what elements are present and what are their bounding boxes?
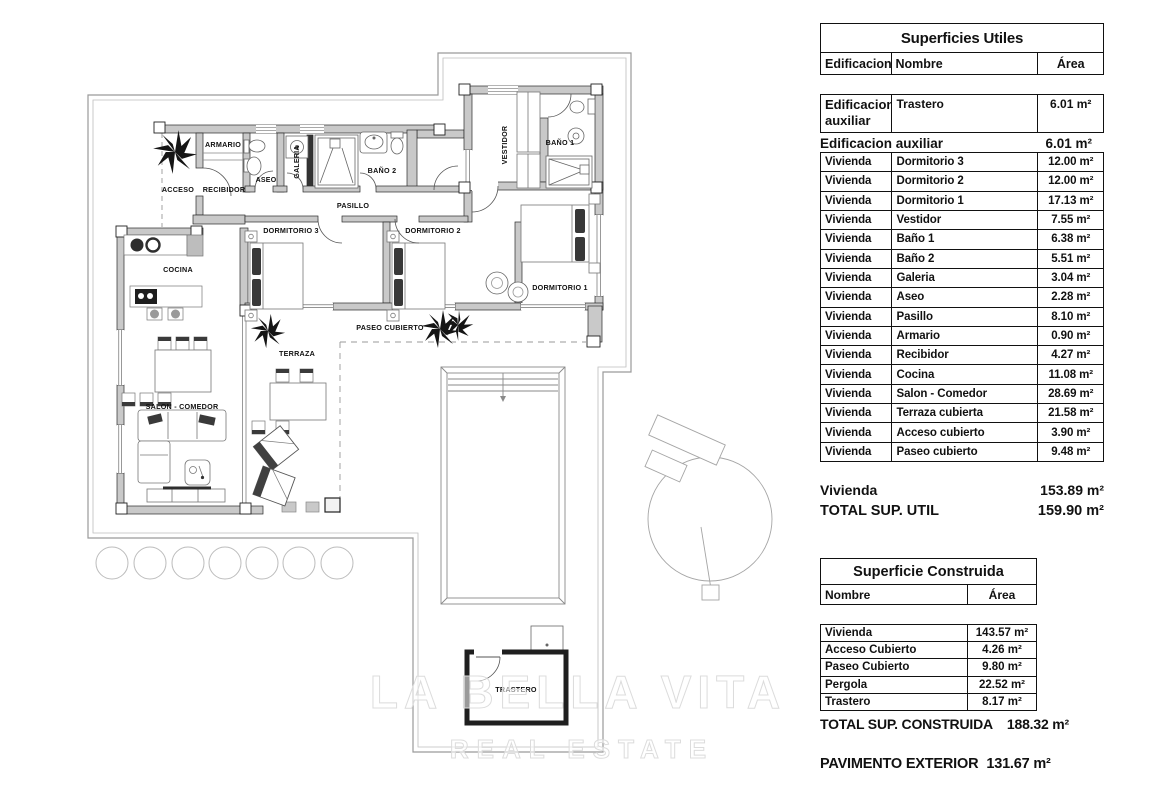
street-trees: [96, 547, 353, 579]
construida-table-title: Superficie Construida: [820, 558, 1037, 585]
cell-edificacion: Vivienda: [821, 404, 891, 422]
cell-area: 9.48 m²: [1037, 443, 1103, 461]
cell-area: 7.55 m²: [1037, 211, 1103, 229]
utiles-table-header: Edificacion Nombre Área: [820, 52, 1104, 75]
stove: [185, 460, 210, 485]
cell-nombre: Trastero: [891, 95, 1038, 132]
table-row-aux: Edificacion auxiliar Trastero 6.01 m²: [820, 94, 1104, 133]
pavimento-value: 131.67 m²: [986, 756, 1050, 772]
floor-plan: ARMARIO ACCESO RECIBIDOR ASEO GALERIA BA…: [0, 0, 810, 785]
label-dormitorio1: DORMITORIO 1: [532, 283, 588, 292]
table-row: ViviendaDormitorio 117.13 m²: [820, 191, 1104, 211]
table-row: ViviendaCocina11.08 m²: [820, 364, 1104, 384]
cell-nombre: Galeria: [891, 269, 1038, 287]
cell-nombre: Pasillo: [891, 308, 1038, 326]
bedroom3-furniture: [245, 231, 303, 321]
table-row: Vivienda143.57 m²: [820, 624, 1037, 642]
table-row: ViviendaVestidor7.55 m²: [820, 210, 1104, 230]
cell-area: 12.00 m²: [1037, 153, 1103, 171]
table-row: ViviendaSalon - Comedor28.69 m²: [820, 384, 1104, 404]
cell-nombre: Baño 2: [891, 250, 1038, 268]
cell-nombre: Cocina: [891, 365, 1038, 383]
label-aseo: ASEO: [256, 177, 277, 184]
cell-nombre: Pergola: [821, 677, 967, 693]
cell-area: 6.01 m²: [1037, 95, 1103, 132]
door-gap: [472, 181, 498, 191]
cell-edificacion: Vivienda: [821, 211, 891, 229]
col-nombre: Nombre: [821, 585, 967, 604]
cell-edificacion: Vivienda: [821, 365, 891, 383]
cell-area: 6.38 m²: [1037, 230, 1103, 248]
cell-edificacion: Vivienda: [821, 250, 891, 268]
subtotal-label: Edificacion auxiliar: [820, 136, 943, 151]
cell-edificacion: Vivienda: [821, 385, 891, 403]
bathroom2-fixtures: [315, 132, 403, 188]
terrace-furniture: [252, 369, 326, 506]
cell-nombre: Acceso cubierto: [891, 423, 1038, 441]
area-tables-panel: Superficies Utiles Edificacion Nombre Ár…: [810, 0, 1170, 785]
table-row: ViviendaPaseo cubierto9.48 m²: [820, 442, 1104, 462]
label-cocina: COCINA: [163, 265, 193, 274]
table-row: Paseo Cubierto9.80 m²: [820, 658, 1037, 676]
cell-nombre: Salon - Comedor: [891, 385, 1038, 403]
cell-nombre: Baño 1: [891, 230, 1038, 248]
label-dormitorio3: DORMITORIO 3: [263, 226, 319, 235]
subtotal-label: Vivienda: [820, 482, 877, 498]
cell-edificacion: Vivienda: [821, 269, 891, 287]
label-paseo: PASEO CUBIERTO: [356, 323, 424, 332]
label-pasillo: PASILLO: [337, 201, 370, 210]
bedroom2-furniture: [387, 231, 445, 321]
label-vestidor: VESTIDOR: [500, 125, 509, 164]
cell-area: 3.04 m²: [1037, 269, 1103, 287]
total-value: 188.32 m²: [1007, 716, 1069, 732]
construida-table-header: Nombre Área: [820, 584, 1037, 605]
cell-edificacion: Vivienda: [821, 172, 891, 190]
table-row: ViviendaBaño 16.38 m²: [820, 229, 1104, 249]
label-dormitorio2: DORMITORIO 2: [405, 226, 461, 235]
cell-edificacion: Vivienda: [821, 327, 891, 345]
cell-area: 4.27 m²: [1037, 346, 1103, 364]
vivienda-subtotal-row: Vivienda 153.89 m²: [820, 479, 1104, 500]
col-edificacion: Edificacion: [821, 53, 891, 74]
tv-bench: [147, 487, 225, 503]
col-area: Área: [967, 585, 1036, 604]
pavimento-label: PAVIMENTO EXTERIOR: [820, 756, 978, 772]
table-row: ViviendaRecibidor4.27 m²: [820, 345, 1104, 365]
cell-area: 17.13 m²: [1037, 192, 1103, 210]
subtotal-value: 6.01 m²: [1045, 136, 1104, 151]
cell-area: 2.28 m²: [1037, 288, 1103, 306]
cell-edificacion: Vivienda: [821, 230, 891, 248]
cell-nombre: Aseo: [891, 288, 1038, 306]
cell-nombre: Paseo cubierto: [891, 443, 1038, 461]
cell-area: 8.10 m²: [1037, 308, 1103, 326]
cell-nombre: Acceso Cubierto: [821, 642, 967, 658]
table-row: ViviendaArmario0.90 m²: [820, 326, 1104, 346]
cell-area: 12.00 m²: [1037, 172, 1103, 190]
construida-rows: Vivienda143.57 m² Acceso Cubierto4.26 m²…: [820, 625, 1037, 711]
label-bano1: BAÑO 1: [546, 138, 575, 147]
table-row: Trastero8.17 m²: [820, 693, 1037, 711]
cell-edificacion: Vivienda: [821, 346, 891, 364]
cell-nombre: Armario: [891, 327, 1038, 345]
cell-nombre: Vivienda: [821, 625, 967, 641]
label-bano2: BAÑO 2: [368, 166, 397, 175]
cell-nombre: Terraza cubierta: [891, 404, 1038, 422]
watermark: LA BELLA VITA REAL ESTATE: [370, 666, 786, 764]
kitchen-furniture: [124, 235, 203, 320]
label-terraza: TERRAZA: [279, 349, 315, 358]
col-nombre: Nombre: [891, 53, 1038, 74]
cell-area: 0.90 m²: [1037, 327, 1103, 345]
label-acceso: ACCESO: [162, 185, 194, 194]
cell-area: 143.57 m²: [967, 625, 1036, 641]
cell-nombre: Trastero: [821, 694, 967, 710]
cell-edificacion: Vivienda: [821, 153, 891, 171]
dining-set: [122, 337, 211, 406]
cell-area: 21.58 m²: [1037, 404, 1103, 422]
cell-area: 9.80 m²: [967, 659, 1036, 675]
cell-edificacion: Vivienda: [821, 423, 891, 441]
label-armario: ARMARIO: [205, 140, 241, 149]
total-label: TOTAL SUP. UTIL: [820, 503, 939, 519]
cell-area: 28.69 m²: [1037, 385, 1103, 403]
total-util-row: TOTAL SUP. UTIL 159.90 m²: [820, 500, 1104, 522]
utiles-rows: ViviendaDormitorio 312.00 m² ViviendaDor…: [820, 153, 1104, 462]
table-row: ViviendaGaleria3.04 m²: [820, 268, 1104, 288]
cell-nombre: Dormitorio 1: [891, 192, 1038, 210]
table-row: ViviendaAseo2.28 m²: [820, 287, 1104, 307]
cell-edificacion: Vivienda: [821, 443, 891, 461]
utiles-table-title: Superficies Utiles: [820, 23, 1104, 53]
cell-nombre: Dormitorio 3: [891, 153, 1038, 171]
cell-area: 22.52 m²: [967, 677, 1036, 693]
garden-tree: [645, 415, 772, 600]
cell-area: 3.90 m²: [1037, 423, 1103, 441]
cell-edificacion: Vivienda: [821, 308, 891, 326]
cell-area: 8.17 m²: [967, 694, 1036, 710]
cell-edificacion: Edificacion auxiliar: [821, 95, 891, 132]
table-row: ViviendaAcceso cubierto3.90 m²: [820, 422, 1104, 442]
label-galeria: GALERIA: [294, 145, 301, 178]
table-row: ViviendaTerraza cubierta21.58 m²: [820, 403, 1104, 423]
cell-edificacion: Vivienda: [821, 192, 891, 210]
pavimento-exterior-row: PAVIMENTO EXTERIOR 131.67 m²: [820, 756, 1140, 772]
watermark-line2: REAL ESTATE: [450, 734, 714, 764]
table-row: ViviendaPasillo8.10 m²: [820, 307, 1104, 327]
cell-area: 5.51 m²: [1037, 250, 1103, 268]
terrace-columns: [282, 498, 340, 512]
cell-edificacion: Vivienda: [821, 288, 891, 306]
table-row: ViviendaDormitorio 312.00 m²: [820, 152, 1104, 172]
total-construida-row: TOTAL SUP. CONSTRUIDA 188.32 m²: [820, 716, 1120, 732]
label-recibidor: RECIBIDOR: [203, 185, 246, 194]
cell-nombre: Paseo Cubierto: [821, 659, 967, 675]
vestidor-closets: [517, 92, 540, 188]
watermark-line1: LA BELLA VITA: [370, 666, 786, 718]
pool: [441, 367, 565, 604]
aux-subtotal-row: Edificacion auxiliar 6.01 m²: [820, 133, 1104, 153]
cell-nombre: Vestidor: [891, 211, 1038, 229]
subtotal-value: 153.89 m²: [1040, 482, 1104, 498]
cell-area: 4.26 m²: [967, 642, 1036, 658]
table-row: Acceso Cubierto4.26 m²: [820, 641, 1037, 659]
col-area: Área: [1037, 53, 1103, 74]
armario-shelves: [203, 153, 243, 160]
cell-nombre: Dormitorio 2: [891, 172, 1038, 190]
table-row: Pergola22.52 m²: [820, 676, 1037, 694]
table-row: ViviendaDormitorio 212.00 m²: [820, 171, 1104, 191]
cell-nombre: Recibidor: [891, 346, 1038, 364]
label-salon: SALON - COMEDOR: [146, 402, 219, 411]
table-row: ViviendaBaño 25.51 m²: [820, 249, 1104, 269]
total-label: TOTAL SUP. CONSTRUIDA: [820, 716, 993, 732]
sofa: [138, 410, 226, 483]
total-value: 159.90 m²: [1038, 503, 1104, 519]
cell-area: 11.08 m²: [1037, 365, 1103, 383]
